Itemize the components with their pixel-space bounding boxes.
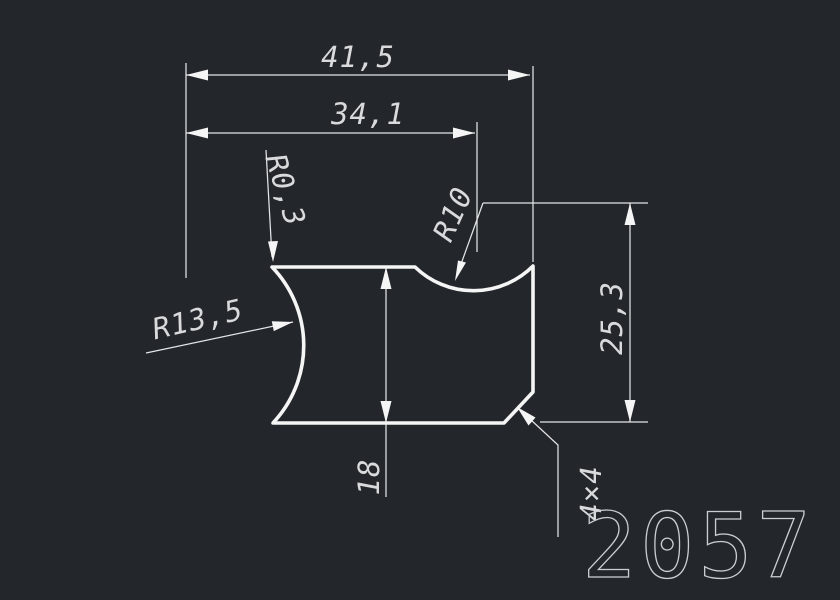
arrow-right-height-bottom (625, 400, 636, 422)
dim-label-right-height: 25,3 (595, 281, 629, 355)
arrow-secondary-right (453, 128, 475, 139)
arrow-chamfer (517, 407, 536, 426)
part-number: 2057 (582, 502, 815, 592)
extension-lines (186, 63, 648, 422)
profile-outline (272, 266, 533, 423)
arrow-overall-left (186, 70, 208, 81)
arrow-overall-right (508, 70, 530, 81)
arrow-groove-radius (455, 261, 466, 282)
arrow-side-radius (272, 321, 293, 331)
dim-label-corner-radius: R0,3 (259, 150, 313, 231)
arrow-secondary-left (186, 128, 208, 139)
dim-label-side-radius: R13,5 (149, 292, 247, 346)
dim-label-overall-width: 41,5 (321, 40, 395, 74)
arrow-body-height-top (381, 267, 392, 289)
arrow-right-height-top (625, 203, 636, 225)
dimension-lines (186, 75, 630, 497)
drawing-canvas[interactable]: 41,5 34,1 R0,3 R10 R13,5 25,3 18 4×4 205… (0, 0, 840, 600)
dim-label-secondary-width: 34,1 (330, 97, 405, 131)
dim-label-groove-radius: R10 (426, 182, 480, 246)
arrow-body-height-bottom (381, 401, 392, 423)
leader-chamfer (517, 407, 558, 537)
dim-label-body-height: 18 (352, 459, 386, 496)
arrow-corner-radius (268, 241, 278, 262)
arrowheads (186, 70, 636, 426)
